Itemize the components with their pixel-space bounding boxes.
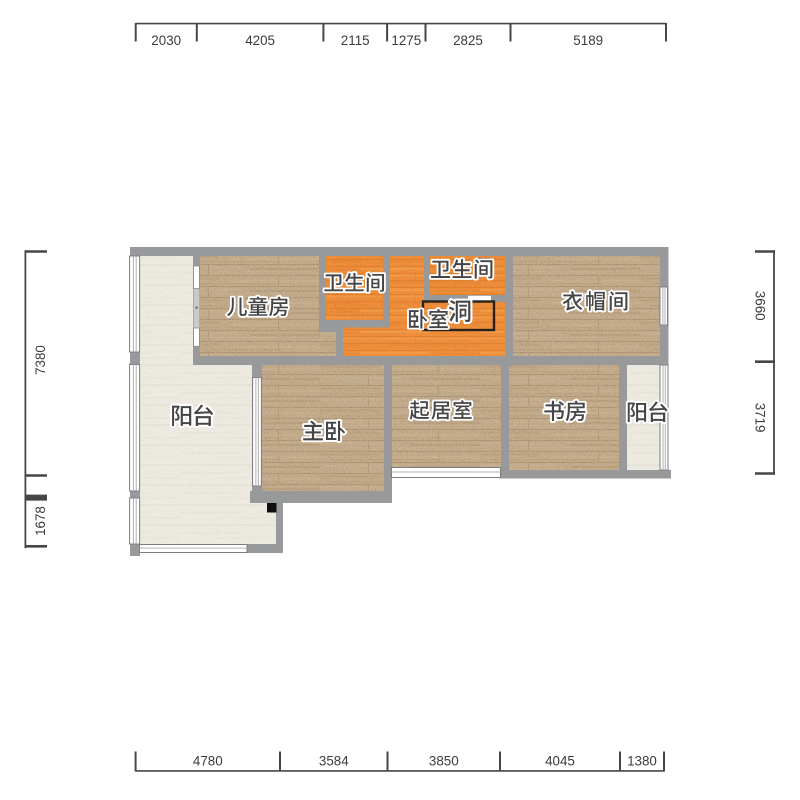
svg-text:5189: 5189: [573, 33, 603, 48]
svg-text:3850: 3850: [429, 754, 459, 769]
svg-text:2030: 2030: [151, 33, 181, 48]
svg-text:3719: 3719: [753, 403, 768, 433]
svg-text:1275: 1275: [391, 33, 421, 48]
svg-text:3660: 3660: [753, 291, 768, 321]
svg-text:7380: 7380: [33, 345, 48, 375]
svg-text:4780: 4780: [193, 754, 223, 769]
svg-text:3584: 3584: [319, 754, 349, 769]
svg-text:4205: 4205: [245, 33, 275, 48]
svg-text:1678: 1678: [33, 506, 48, 536]
svg-text:2115: 2115: [341, 33, 370, 48]
svg-text:4045: 4045: [545, 754, 575, 769]
svg-text:2825: 2825: [453, 33, 483, 48]
svg-text:1380: 1380: [627, 754, 657, 769]
